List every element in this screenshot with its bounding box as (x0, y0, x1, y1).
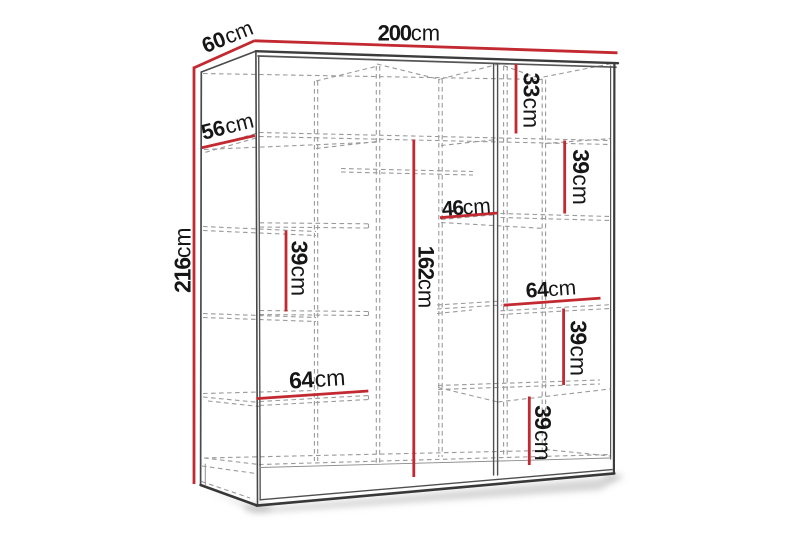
svg-text:33cm: 33cm (518, 73, 544, 129)
svg-text:46cm: 46cm (441, 194, 492, 221)
svg-text:64cm: 64cm (525, 276, 577, 303)
svg-text:216cm: 216cm (170, 227, 196, 292)
svg-text:39cm: 39cm (286, 241, 312, 297)
svg-text:39cm: 39cm (565, 320, 591, 376)
svg-text:39cm: 39cm (530, 405, 556, 461)
svg-text:162cm: 162cm (413, 246, 438, 308)
svg-text:39cm: 39cm (568, 149, 594, 205)
svg-text:64cm: 64cm (288, 364, 346, 394)
svg-text:200cm: 200cm (378, 21, 440, 46)
